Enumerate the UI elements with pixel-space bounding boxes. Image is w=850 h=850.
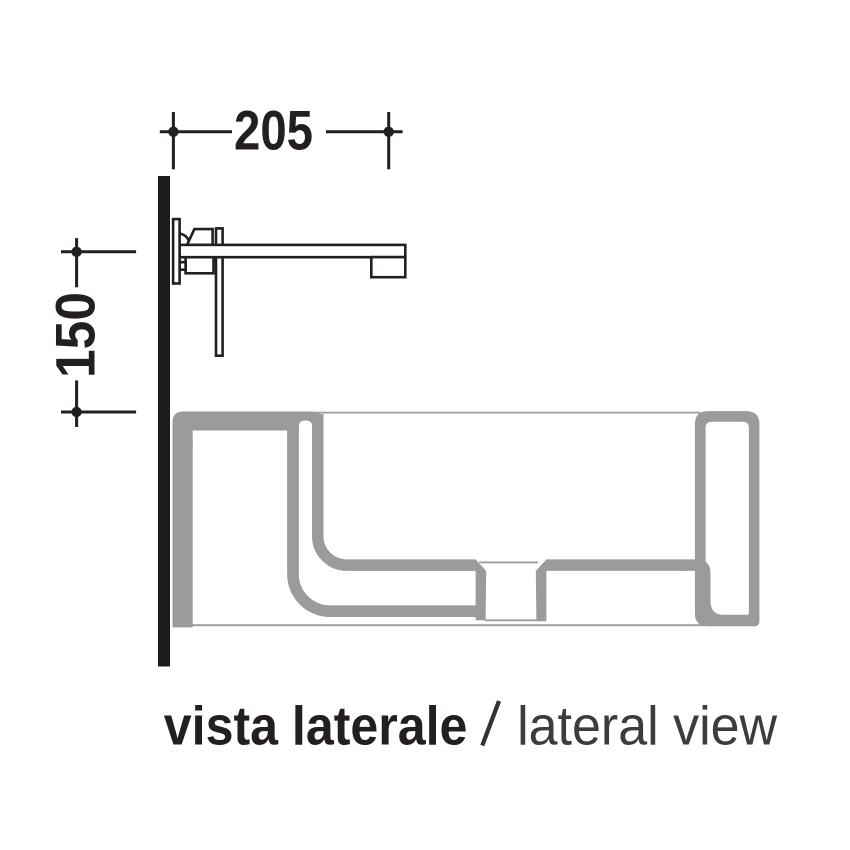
svg-text:vista laterale: vista laterale: [164, 695, 468, 757]
svg-text:205: 205: [234, 99, 313, 162]
svg-text:150: 150: [44, 292, 107, 378]
svg-text:lateral view: lateral view: [517, 695, 777, 757]
